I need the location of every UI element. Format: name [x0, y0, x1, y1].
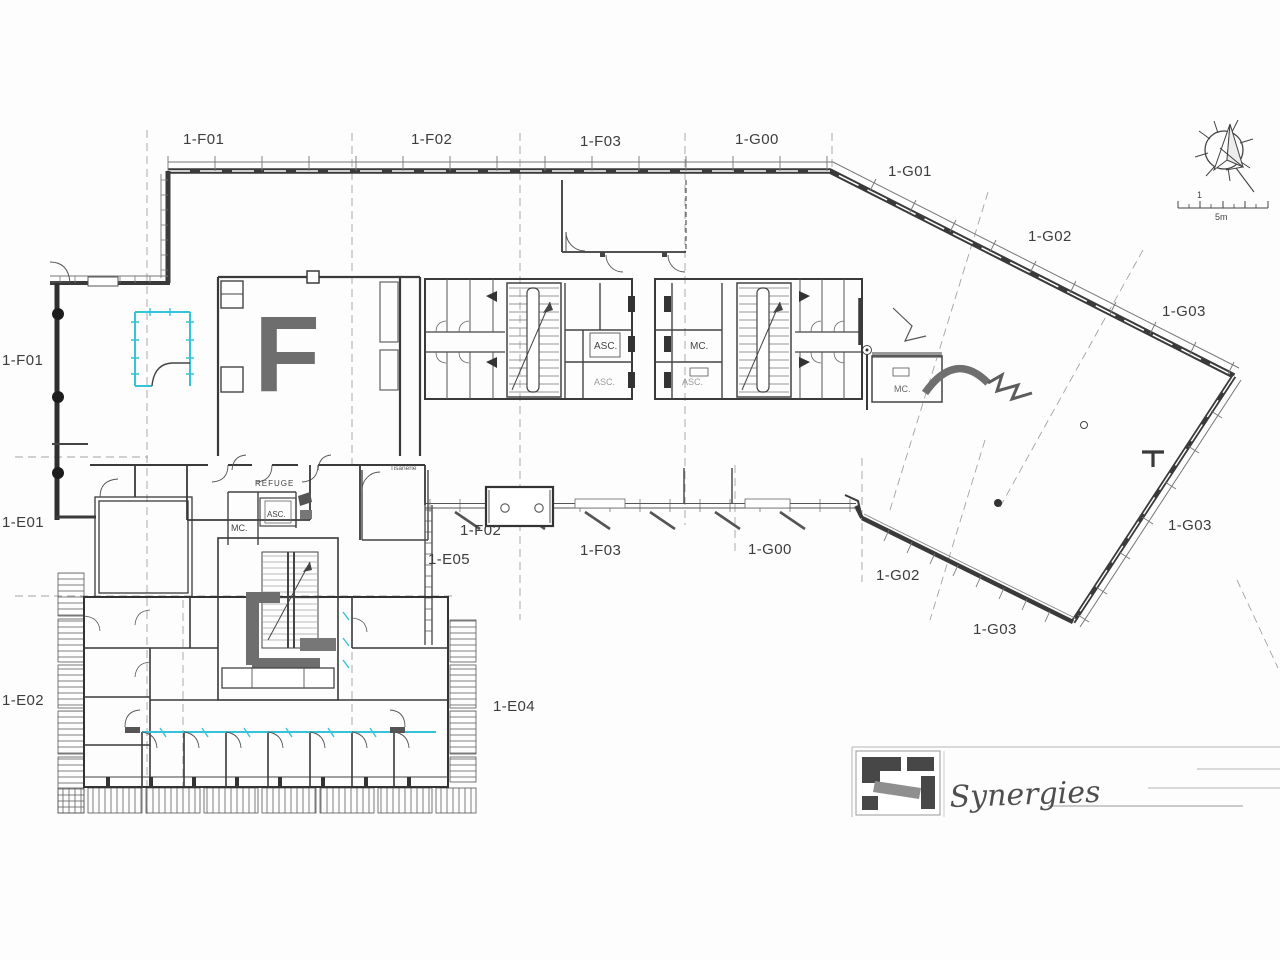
- zone-label-1g02-upper: 1-G02: [1028, 228, 1072, 245]
- zone-label-1f01-top: 1-F01: [183, 131, 224, 148]
- core-end-mc-label: MC.: [894, 384, 911, 394]
- floorplan-canvas: F ASC. ASC.: [0, 0, 1280, 960]
- zone-label-1f03-mid: 1-F03: [580, 542, 621, 559]
- zone-label-1e04: 1-E04: [493, 698, 535, 715]
- tower-block: [58, 573, 476, 813]
- core-a-asc-label: ASC.: [594, 341, 617, 352]
- zone-label-1e01: 1-E01: [2, 514, 44, 531]
- refuge-mc-label: MC.: [231, 523, 248, 533]
- zone-label-1g01: 1-G01: [888, 163, 932, 180]
- scale-bar: [1178, 201, 1268, 208]
- zone-label-1g02-lower: 1-G02: [876, 567, 920, 584]
- g-wing-walls: [845, 376, 1241, 627]
- scale-unit-label: 5m: [1215, 212, 1228, 222]
- logo-wordmark: Synergies: [949, 775, 1101, 815]
- zone-label-1g00-mid: 1-G00: [748, 541, 792, 558]
- zone-label-1e05: 1-E05: [428, 551, 470, 568]
- refuge-asc-label: ASC.: [267, 510, 286, 519]
- zone-label-1e02: 1-E02: [2, 692, 44, 709]
- room-f-letter: F: [254, 293, 320, 414]
- core-a-asc-label-2: ASC.: [594, 377, 615, 387]
- core-end: [860, 298, 1032, 410]
- zone-label-1g03-lower: 1-G03: [973, 621, 1017, 638]
- zone-label-1f02-mid: 1-F02: [460, 522, 501, 539]
- scale-major-label: 1: [1197, 190, 1202, 200]
- west-walls: [50, 171, 170, 520]
- south-walkway: [425, 468, 856, 529]
- refuge-label: REFUGE: [255, 479, 294, 488]
- core-b-asc-label: ASC.: [682, 377, 703, 387]
- zone-label-1f01-left: 1-F01: [2, 352, 43, 369]
- room-cyan-partition: [131, 308, 194, 386]
- tisanerie-label: Tisanerie: [390, 465, 417, 472]
- zone-label-1g03-upper: 1-G03: [1162, 303, 1206, 320]
- upper-room: [562, 180, 686, 272]
- zone-label-1g03-right: 1-G03: [1168, 517, 1212, 534]
- grid-lines: [15, 130, 1278, 815]
- tower-core: [218, 538, 338, 700]
- zone-label-1g00-top: 1-G00: [735, 131, 779, 148]
- core-b-mc-label: MC.: [690, 341, 708, 352]
- zone-label-1f02-top: 1-F02: [411, 131, 452, 148]
- zone-label-1f03-top: 1-F03: [580, 133, 621, 150]
- compass-rose-icon: [1195, 120, 1254, 192]
